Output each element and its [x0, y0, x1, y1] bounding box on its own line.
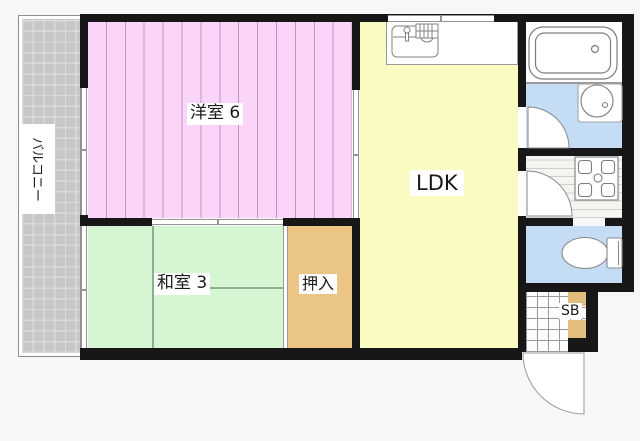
wall-bottom — [80, 348, 522, 360]
entrance-door — [523, 353, 584, 414]
japanese-room-label: 和室 3 — [154, 273, 210, 295]
balcony-label-text: バルコニー — [29, 137, 48, 202]
kitchen-counter — [386, 22, 518, 65]
wall-ldk-right-1 — [518, 14, 526, 107]
wall-toilet-bottom — [518, 283, 634, 292]
wall-right-outer — [622, 14, 634, 292]
floor-plan: バルコニー 洋室 6 LDK 和室 3 押入 SB — [0, 0, 640, 441]
ldk-label: LDK — [410, 170, 464, 196]
wall-washroom-hall — [518, 148, 634, 156]
window-japanese-tick — [81, 289, 87, 291]
window-western — [81, 88, 87, 215]
wall-left-upper — [80, 14, 88, 88]
sliding-door-western-ldk-tick — [353, 154, 359, 156]
wall-closet-top — [283, 218, 360, 226]
wall-western-ldk — [352, 22, 360, 90]
wall-entrance-corner — [568, 338, 598, 352]
wall-left-mid — [80, 215, 88, 226]
window-kitchen-tick — [440, 15, 442, 22]
wall-top — [80, 14, 634, 22]
western-room-label: 洋室 6 — [187, 103, 243, 125]
room-toilet — [526, 226, 622, 283]
wall-western-bottom — [88, 218, 152, 226]
shoe-box-label: SB — [559, 303, 582, 319]
window-western-tick — [81, 149, 87, 151]
window-japanese — [81, 226, 87, 348]
balcony-label: バルコニー — [21, 124, 55, 214]
wall-hall-toilet-left — [518, 218, 573, 226]
closet-divider — [283, 226, 288, 352]
wall-closet-right — [352, 218, 360, 360]
sliding-door-japanese-western-tick — [217, 219, 219, 225]
bath-divider — [526, 82, 622, 84]
room-hallway — [526, 156, 622, 218]
shoe-box-lower — [568, 320, 586, 338]
closet-label: 押入 — [299, 274, 337, 294]
room-bathroom — [526, 22, 622, 82]
room-washroom — [526, 84, 622, 148]
